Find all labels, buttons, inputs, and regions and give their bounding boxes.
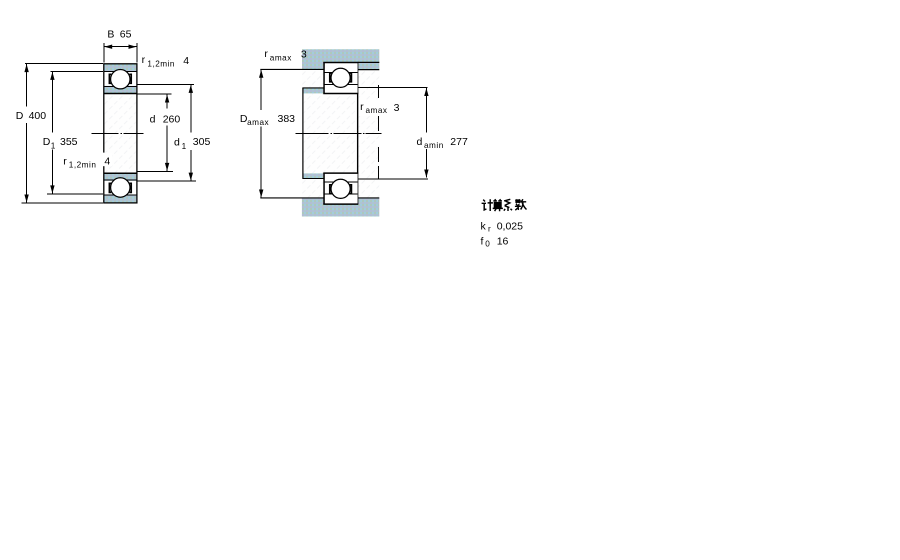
svg-text:0,025: 0,025	[497, 220, 523, 232]
svg-text:1: 1	[51, 142, 56, 151]
svg-text:d: d	[417, 136, 423, 148]
svg-text:1: 1	[182, 142, 187, 151]
svg-text:D: D	[43, 136, 51, 148]
svg-text:3: 3	[301, 49, 307, 61]
svg-text:amax: amax	[247, 118, 269, 127]
svg-text:f: f	[481, 236, 484, 248]
svg-text:1,2min: 1,2min	[147, 60, 175, 69]
svg-text:355: 355	[60, 136, 78, 148]
svg-text:383: 383	[278, 113, 296, 125]
svg-text:277: 277	[450, 136, 468, 148]
svg-text:4: 4	[183, 55, 189, 67]
svg-text:0: 0	[485, 240, 490, 249]
svg-text:16: 16	[497, 236, 509, 248]
svg-text:amin: amin	[424, 141, 444, 150]
svg-text:3: 3	[394, 102, 400, 114]
svg-text:D: D	[16, 110, 24, 122]
svg-text:d: d	[174, 136, 180, 148]
svg-text:d: d	[150, 113, 156, 125]
svg-text:1,2min: 1,2min	[69, 161, 97, 170]
svg-text:r: r	[142, 54, 146, 66]
svg-text:400: 400	[29, 110, 47, 122]
svg-text:r: r	[264, 48, 268, 60]
svg-text:amax: amax	[270, 53, 292, 62]
svg-text:r: r	[360, 101, 364, 113]
svg-text:k: k	[481, 220, 487, 232]
svg-text:4: 4	[104, 155, 110, 167]
svg-text:amax: amax	[366, 106, 388, 115]
svg-text:r: r	[63, 155, 67, 167]
svg-text:r: r	[488, 225, 491, 234]
svg-text:260: 260	[163, 113, 181, 125]
svg-text:305: 305	[193, 136, 211, 148]
svg-text:65: 65	[120, 29, 132, 41]
svg-text:B: B	[107, 29, 114, 41]
